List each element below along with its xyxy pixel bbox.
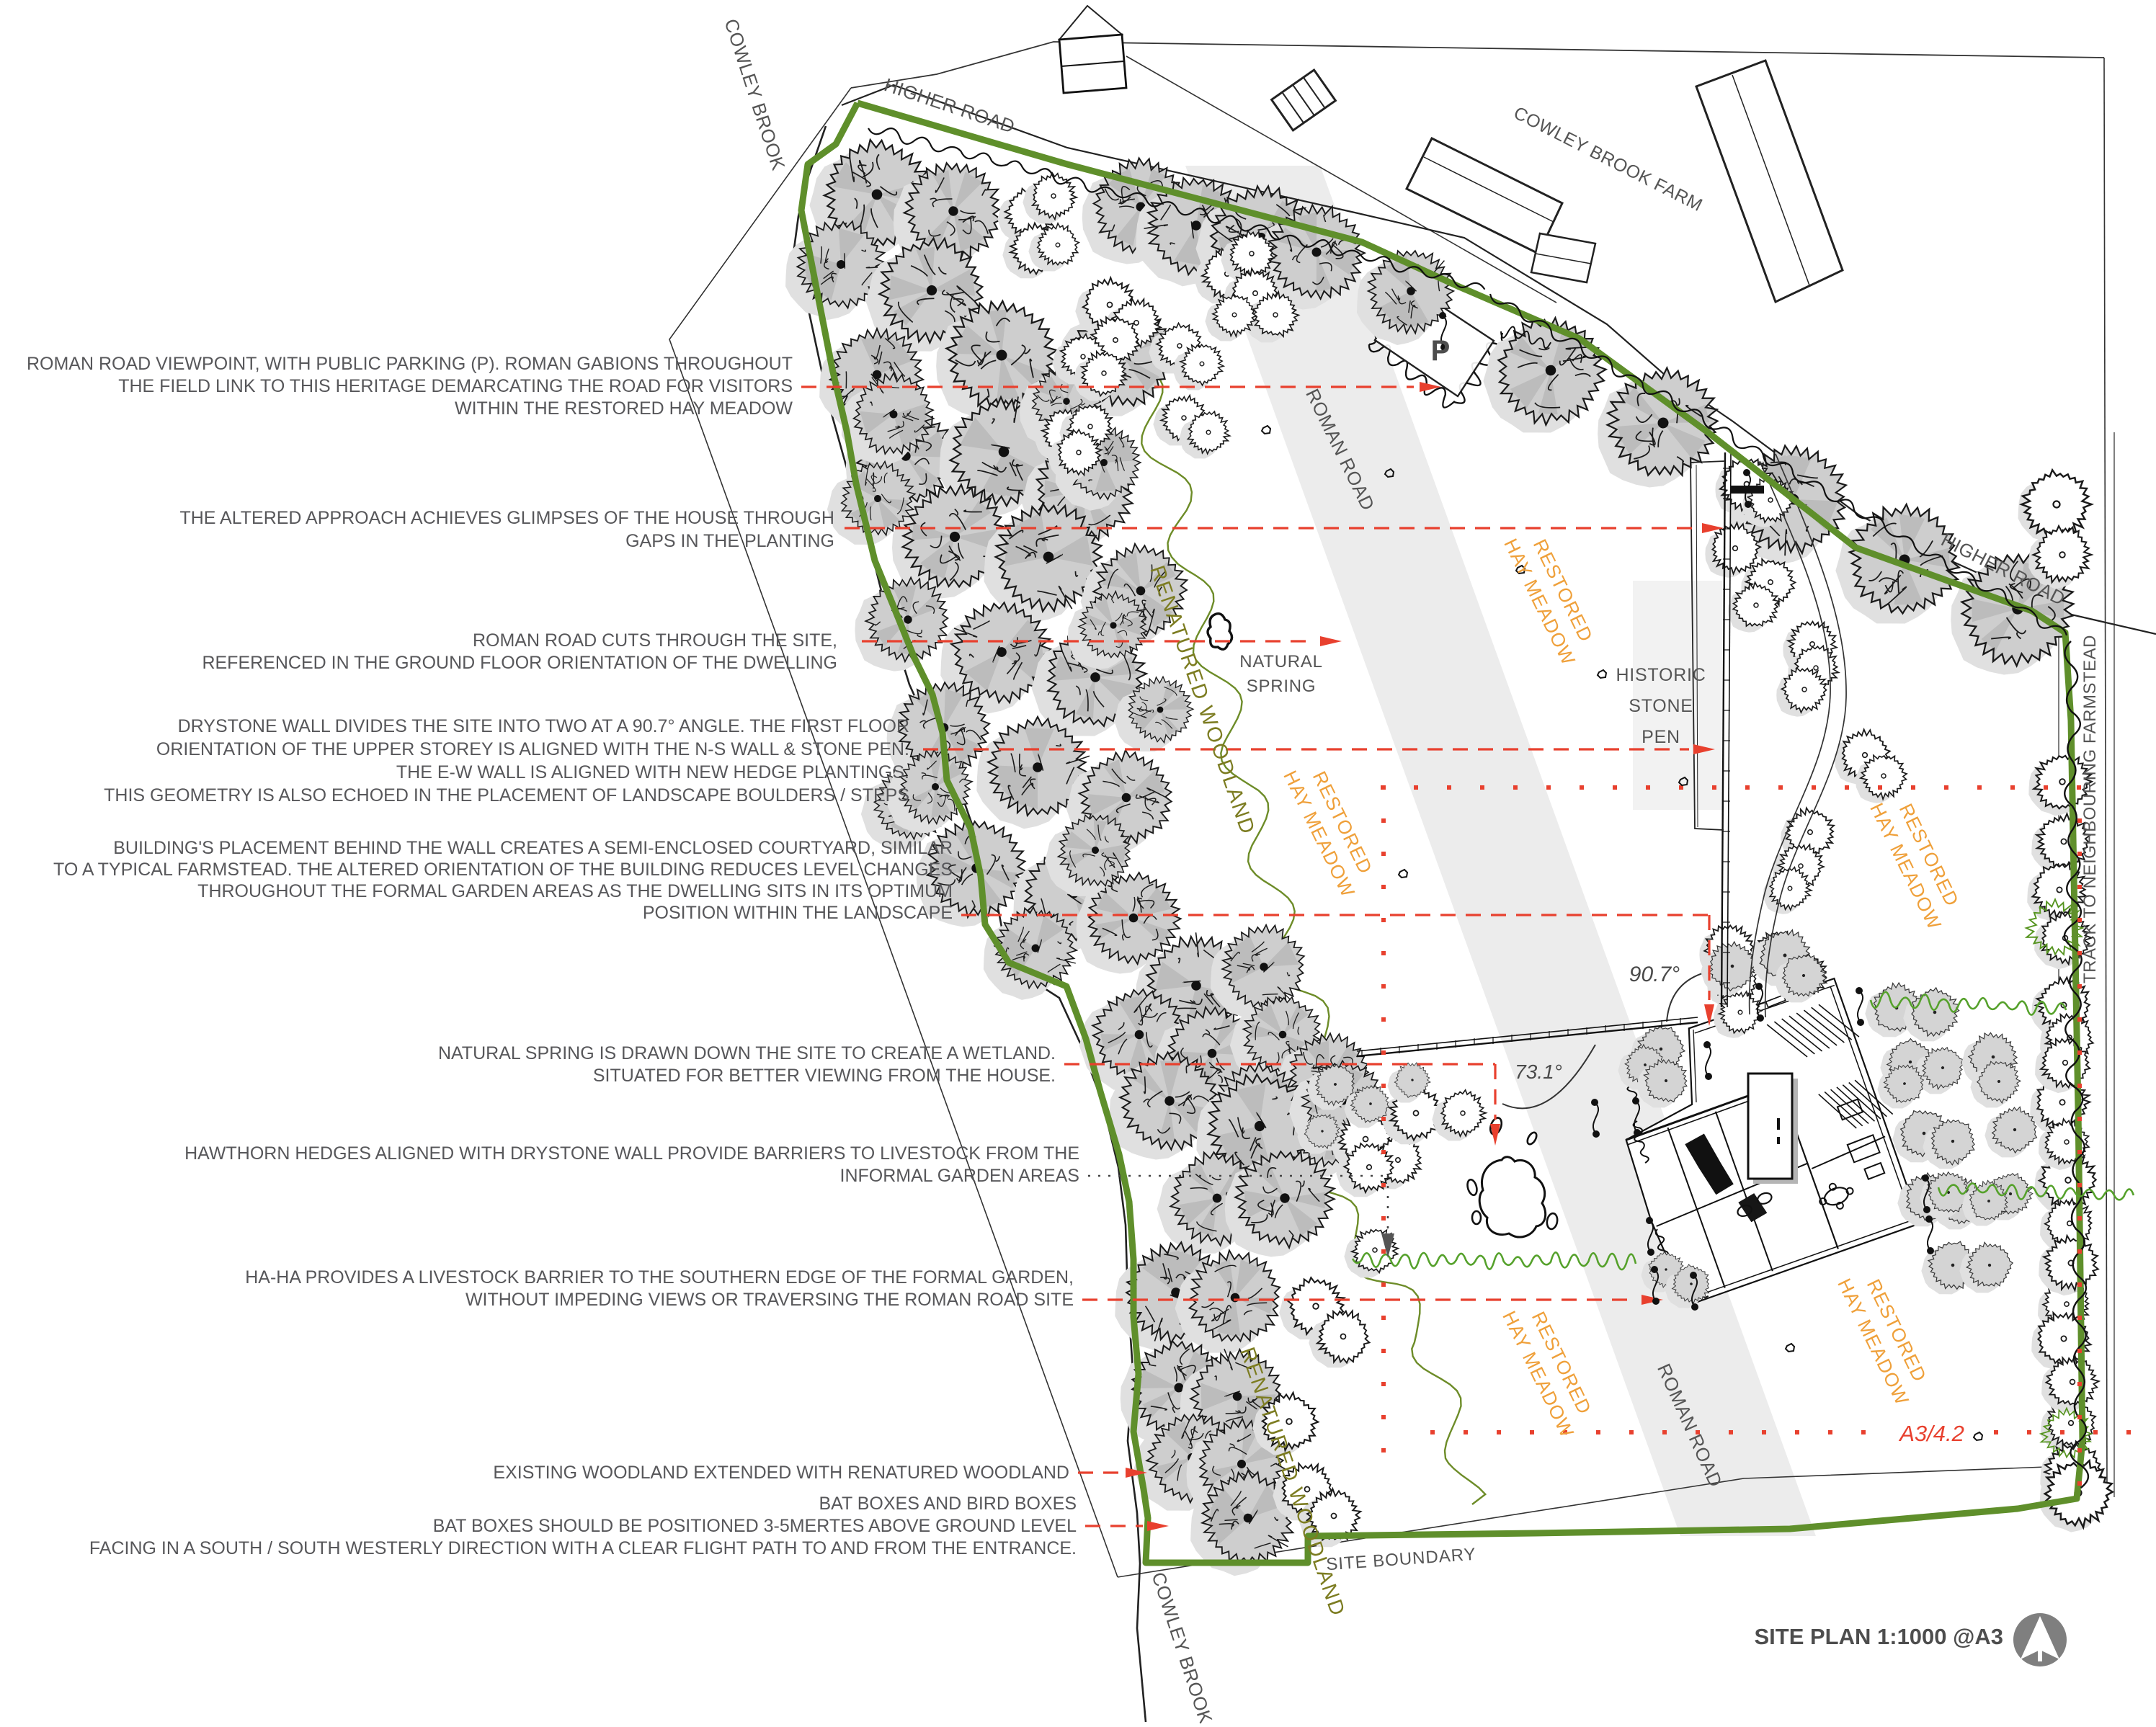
svg-text:A3/4.2: A3/4.2 — [1898, 1421, 1964, 1446]
svg-text:P: P — [1431, 335, 1451, 367]
svg-text:HISTORIC: HISTORIC — [1616, 665, 1706, 685]
svg-text:EXISTING WOODLAND EXTENDED WIT: EXISTING WOODLAND EXTENDED WITH RENATURE… — [493, 1463, 1069, 1483]
svg-text:PEN: PEN — [1641, 727, 1680, 747]
svg-text:SPRING: SPRING — [1247, 677, 1317, 696]
svg-text:90.7°: 90.7° — [1629, 963, 1680, 986]
svg-text:SITE PLAN 1:1000 @A3: SITE PLAN 1:1000 @A3 — [1754, 1624, 2003, 1649]
svg-text:NATURAL: NATURAL — [1239, 652, 1323, 671]
svg-text:TRACK TO NEIGHBOURING FARMSTEA: TRACK TO NEIGHBOURING FARMSTEAD — [2080, 635, 2100, 983]
svg-text:73.1°: 73.1° — [1515, 1061, 1562, 1083]
svg-text:STONE: STONE — [1629, 696, 1693, 716]
